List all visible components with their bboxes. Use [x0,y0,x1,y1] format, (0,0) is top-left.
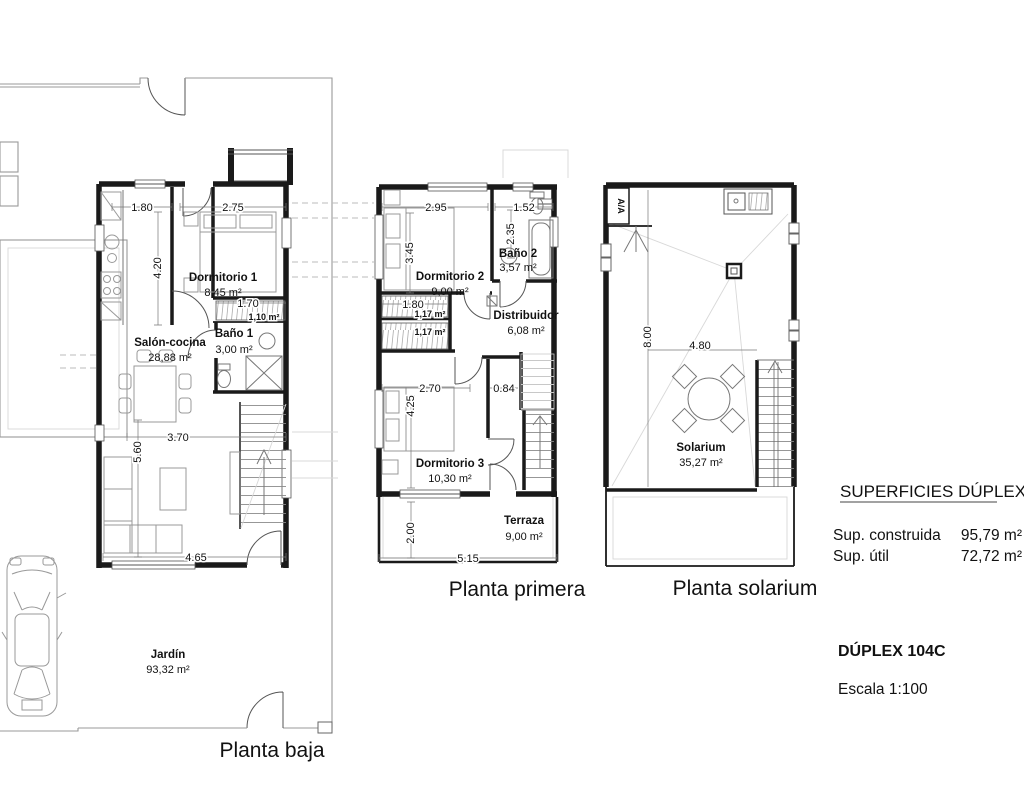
armario1-area-label: 1,17 m² [414,309,445,319]
plan-title-primera: Planta primera [449,578,586,601]
room-name-jardin: Jardín [151,649,186,661]
room-area-salon: 28,88 m² [148,352,192,364]
dim-bano2-width: 1.52 [513,202,534,214]
staircase [240,402,286,529]
room-area-distribuidor: 6,08 m² [507,325,545,337]
outdoor-sink [724,189,772,214]
dim-terraza-width: 5.15 [457,553,478,565]
dim-salon-bottom: 4.65 [185,552,206,564]
dim-bano2-depth: 2.35 [505,223,517,244]
util-value: 72,72 m² [961,548,1022,565]
dim-salon-width: 3.70 [167,432,188,444]
sink-icon [105,235,119,249]
ac-unit: A/A [607,188,652,252]
garden-gate-door-arc [247,692,283,728]
plan-title-solarium: Planta solarium [673,577,818,600]
dim-dorm3-depth: 4.25 [405,395,417,416]
planta-primera-plan: 2.95 1.52 3.45 2.35 1.80 1,17 m² 1,17 m²… [375,150,586,601]
neighbor-structure [0,240,127,437]
construida-label: Sup. construida [833,527,941,544]
room-area-dormitorio2: 9,00 m² [431,286,469,298]
dim-solarium-depth: 8.00 [642,326,654,347]
room-name-distribuidor: Distribuidor [493,310,559,322]
dim-dorm1-width: 2.75 [222,202,243,214]
terraza-door-arc [490,464,516,490]
room-area-solarium: 35,27 m² [679,457,723,469]
info-panel: SUPERFICIES DÚPLEX Sup. construida 95,79… [833,482,1024,698]
dim-armario-width: 1.70 [237,298,258,310]
room-area-jardin: 93,32 m² [146,664,190,676]
gate-post [318,722,332,733]
garden-door-arc [247,531,281,565]
toilet-icon [530,192,544,198]
floorplan-sheet: 1.80 2.75 4.20 1.70 1,10 m² 3.70 5.60 4.… [0,0,1024,800]
dim-salon-depth: 5.60 [132,441,144,462]
roof-projection [503,150,568,178]
tv-bench [230,452,240,514]
construida-value: 95,79 m² [961,527,1022,544]
planta-baja-plan: 1.80 2.75 4.20 1.70 1,10 m² 3.70 5.60 4.… [0,78,374,762]
plan-title-baja: Planta baja [219,739,324,762]
room-area-bano2: 3,57 m² [499,262,537,274]
planta-solarium-plan: A/A [601,185,817,600]
car [2,556,66,716]
room-area-terraza: 9,00 m² [505,531,543,543]
armario2-area-label: 1,17 m² [414,327,445,337]
room-name-dormitorio1: Dormitorio 1 [189,272,258,284]
sofa [104,452,240,553]
staircase [757,360,794,487]
room-area-bano1: 3,00 m² [215,344,253,356]
room-name-salon: Salón-cocina [134,337,206,349]
room-area-dormitorio1: 8,45 m² [204,287,242,299]
hall-door-arc [488,439,514,465]
dormitorio3-door-arc [455,357,482,384]
duplex-code: DÚPLEX 104C [838,641,946,660]
ac-unit-label: A/A [616,198,626,214]
bathroom1-fixtures [218,333,283,390]
entrance-porch [228,148,293,185]
room-name-dormitorio3: Dormitorio 3 [416,458,484,470]
bathroom2-door-arc [500,281,526,307]
room-name-bano1: Baño 1 [215,328,254,340]
floor-drain-icon [727,264,741,278]
room-name-terraza: Terraza [504,515,545,527]
room-name-solarium: Solarium [676,442,725,454]
armario-area-label: 1,10 m² [248,312,279,322]
dim-dorm2-width: 2.95 [425,202,446,214]
util-label: Sup. útil [833,548,889,565]
toilet-icon [218,364,230,370]
superficies-heading: SUPERFICIES DÚPLEX [840,482,1024,501]
room-area-dormitorio3: 10,30 m² [428,473,472,485]
dim-hall-width: 0.84 [493,383,514,395]
dim-entry-width: 1.80 [131,202,152,214]
washbasin-icon [259,333,275,349]
room-name-dormitorio2: Dormitorio 2 [416,271,484,283]
dim-dorm2-depth: 3.45 [404,242,416,263]
dim-dorm3-width: 2.70 [419,383,440,395]
dim-terraza-depth: 2.00 [405,522,417,543]
staircase [521,354,554,484]
coffee-table [160,468,186,510]
plot-gate-door-arc [148,78,185,115]
architectural-drawing: 1.80 2.75 4.20 1.70 1,10 m² 3.70 5.60 4.… [0,0,1024,800]
dim-solarium-width: 4.80 [689,340,710,352]
garden-table [672,364,744,432]
room-name-bano2: Baño 2 [499,248,537,260]
escala-label: Escala 1:100 [838,681,928,698]
dim-kitchen-depth: 4.20 [152,257,164,278]
